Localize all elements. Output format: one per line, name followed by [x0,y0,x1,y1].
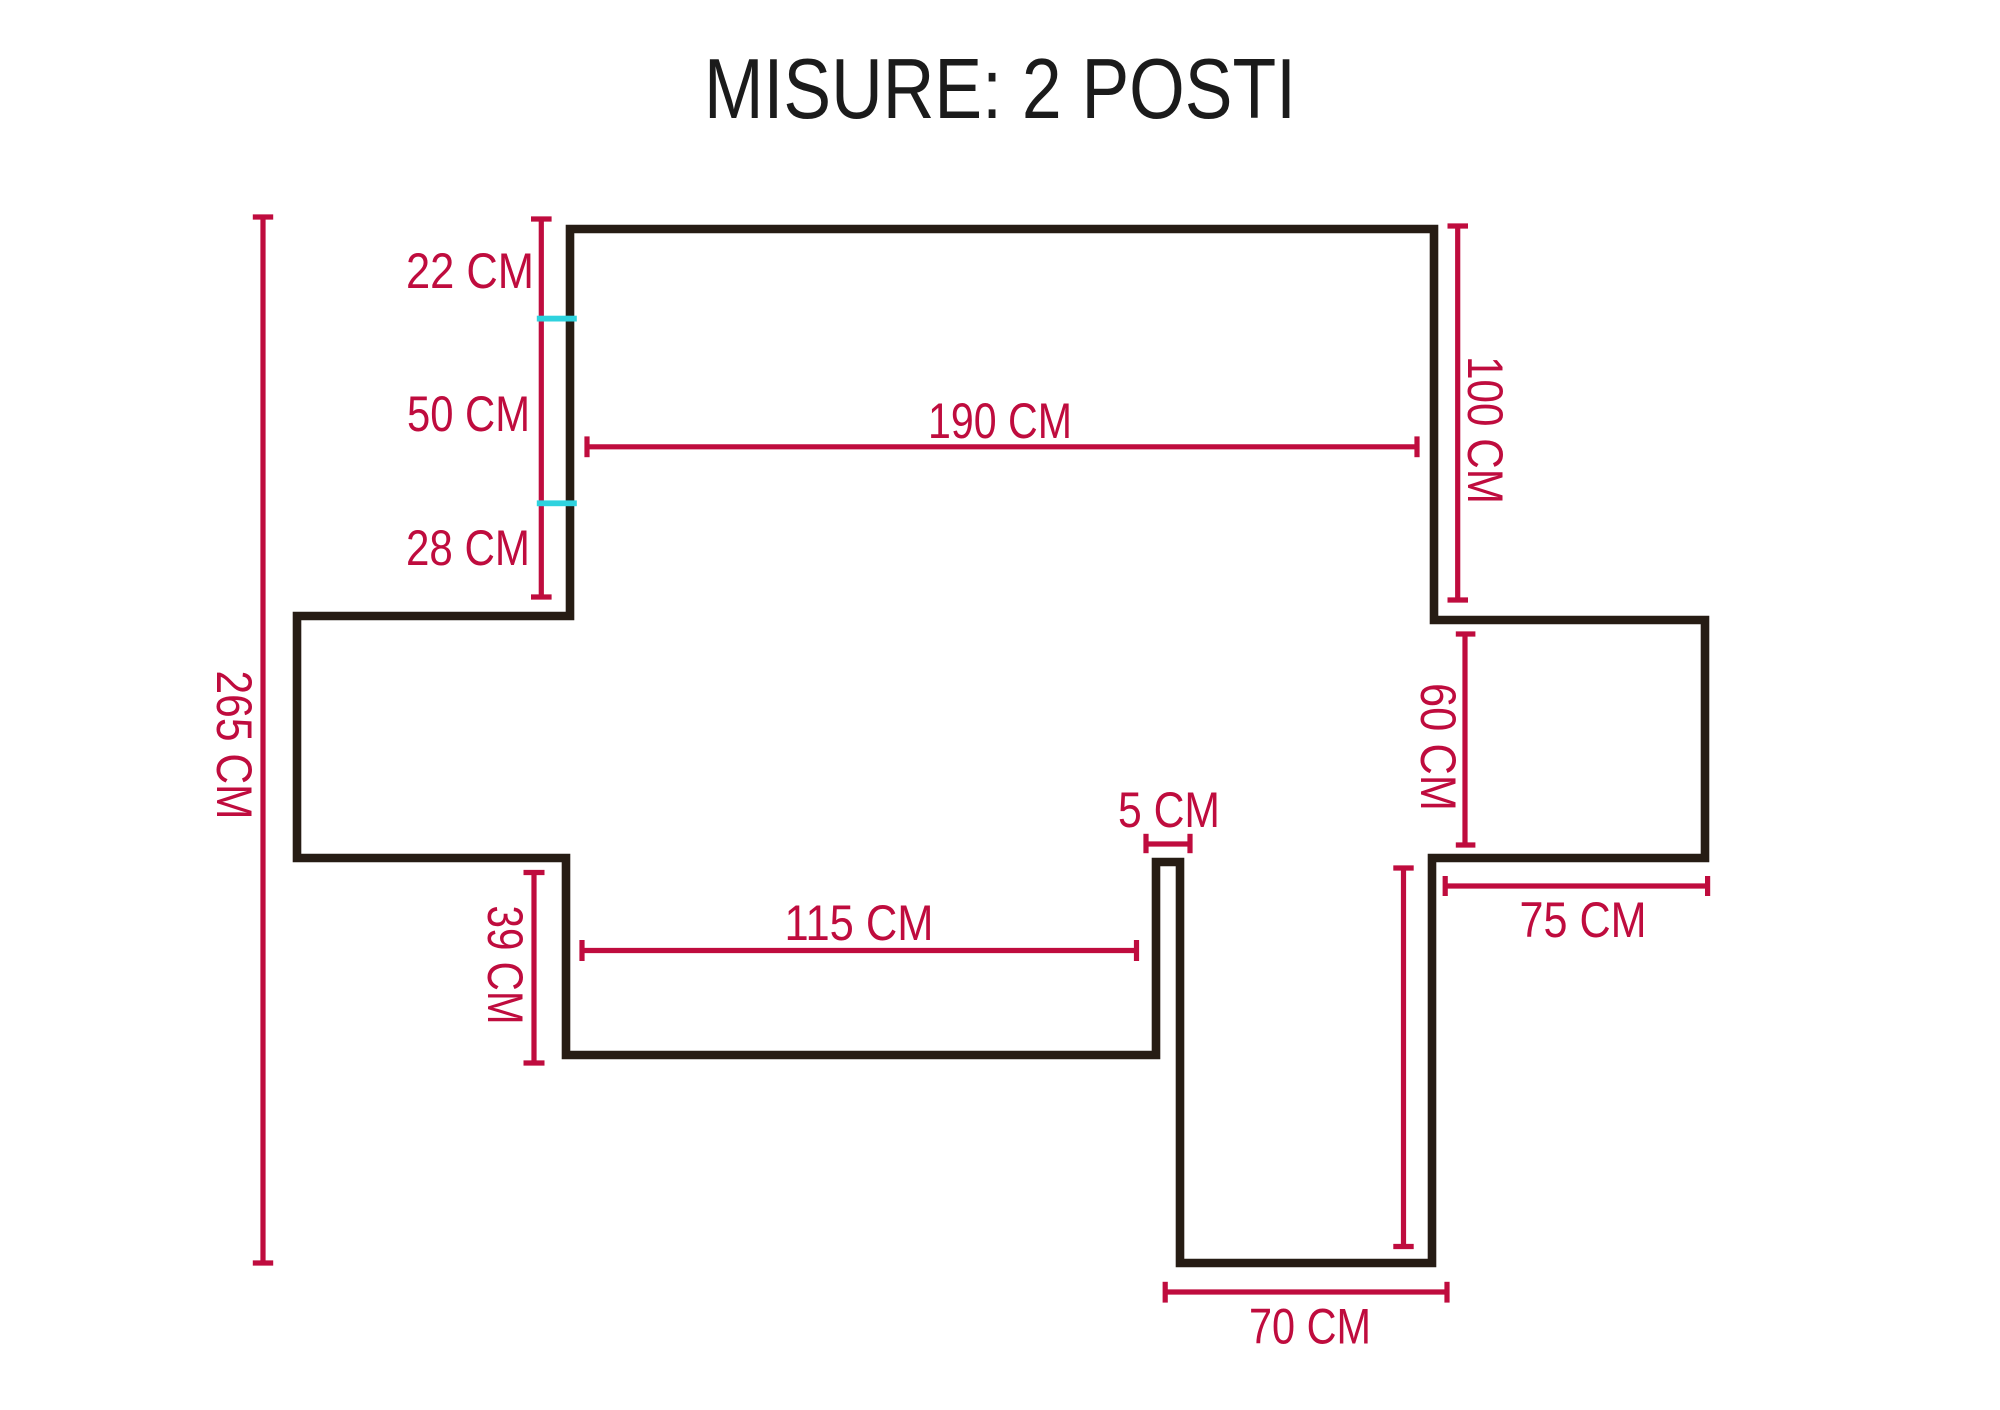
svg-text:100 CM: 100 CM [1457,356,1513,504]
svg-text:28 CM: 28 CM [406,520,530,576]
svg-text:50 CM: 50 CM [407,386,530,442]
svg-text:39 CM: 39 CM [477,906,533,1025]
svg-text:190 CM: 190 CM [928,393,1072,449]
svg-text:265 CM: 265 CM [206,671,262,820]
svg-text:75 CM: 75 CM [1520,892,1647,948]
svg-text:60 CM: 60 CM [1410,683,1466,811]
svg-text:22 CM: 22 CM [406,243,534,299]
svg-text:5 CM: 5 CM [1118,782,1220,838]
svg-text:MISURE: 2 POSTI: MISURE: 2 POSTI [704,42,1296,137]
svg-text:70 CM: 70 CM [1249,1299,1371,1355]
svg-text:115 CM: 115 CM [785,895,934,951]
